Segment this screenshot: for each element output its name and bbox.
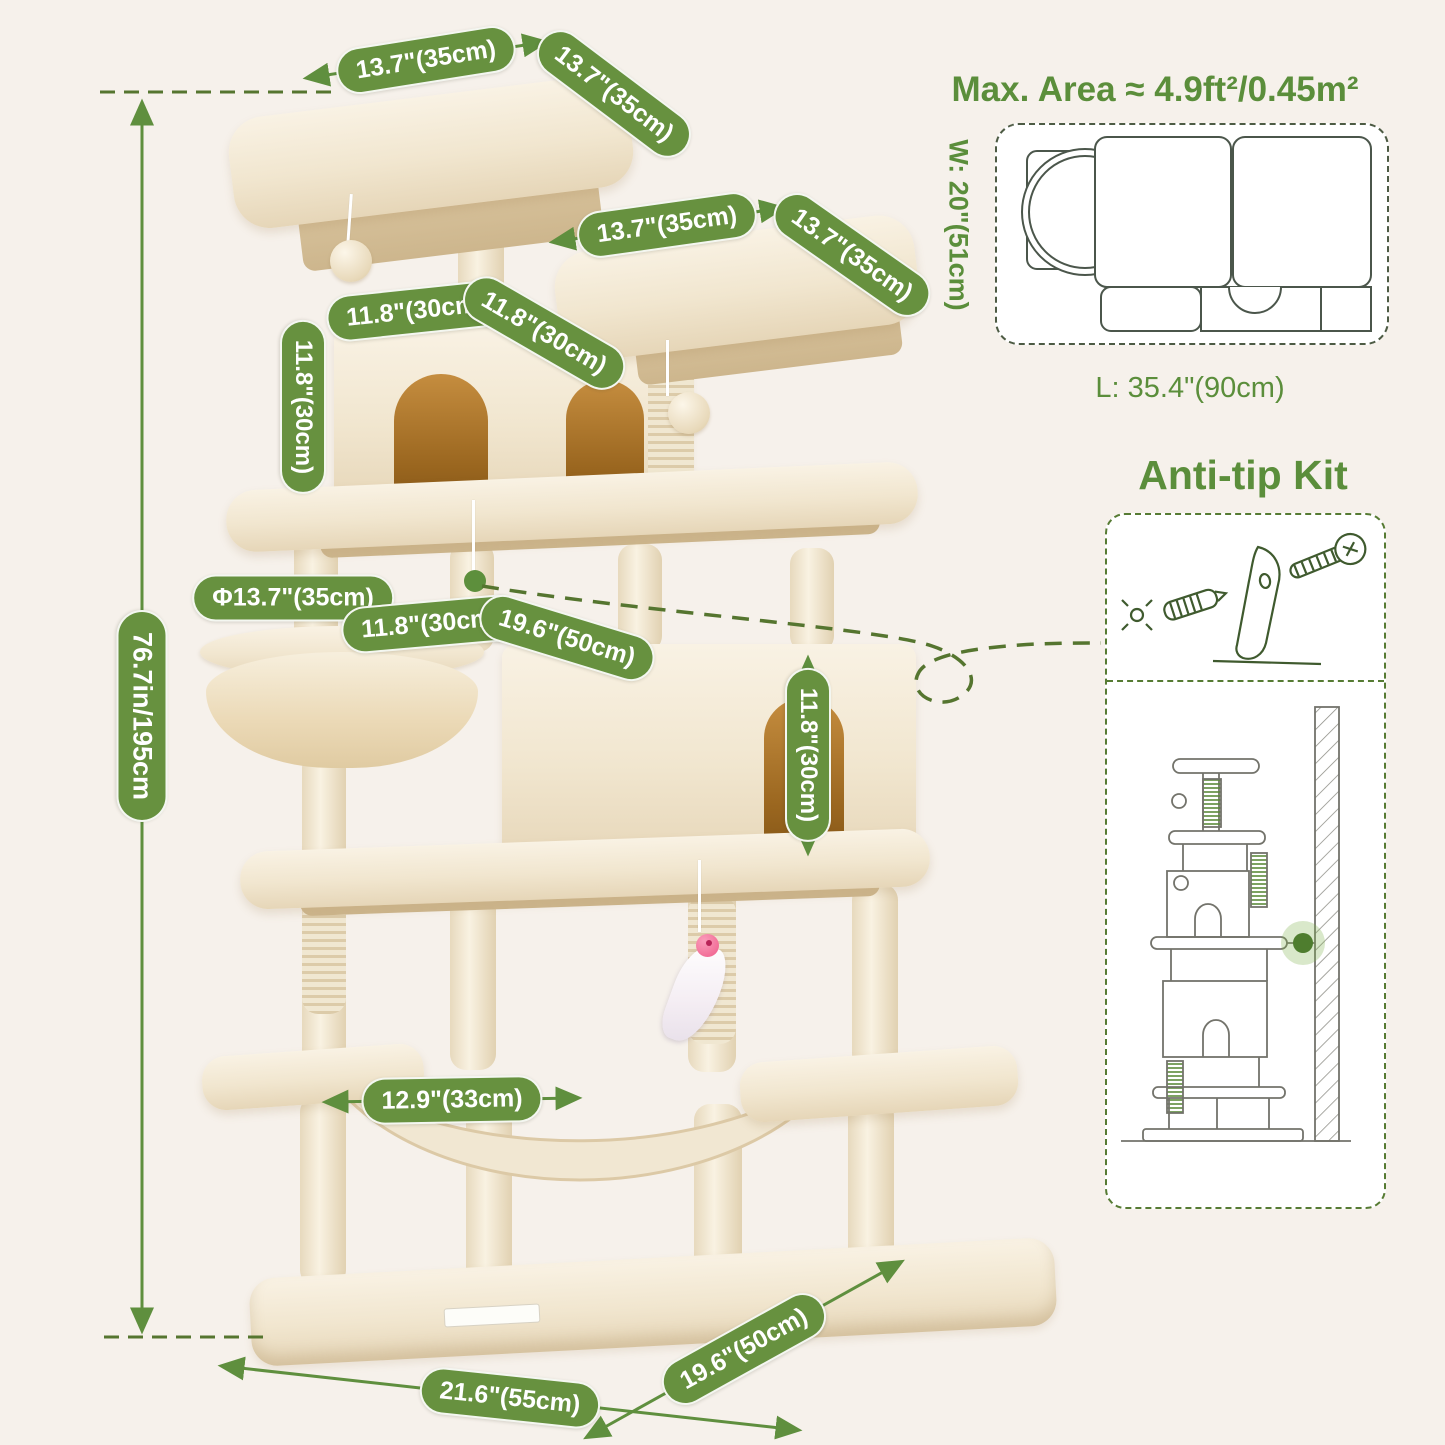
top-view-width-label: W: 20"(51cm) [943,139,974,310]
anti-tip-box [1105,513,1386,1209]
top-view-diagram [997,125,1383,339]
feather-eye [706,940,712,946]
top-view-length-label: L: 35.4"(90cm) [1040,372,1340,405]
pompom-toy [668,392,710,434]
anti-tip-hardware-diagram [1107,515,1384,680]
dim-hammock-width: 12.9"(33cm) [361,1075,543,1125]
support-post [450,884,496,1070]
pompom-toy [330,240,372,282]
toy-string [472,500,475,576]
base-board [248,1237,1058,1367]
support-post [852,884,898,1070]
support-post [790,548,834,652]
feather-toy [646,920,756,1050]
basket-bowl [206,652,478,768]
wall-mount-diagram [1107,683,1384,1203]
low-platform-right [738,1044,1020,1123]
dim-large-condo-height: 11.8"(30cm) [785,668,831,842]
anchor-point-dot [464,570,486,592]
product-dimension-infographic: 13.7"(35cm) 13.7"(35cm) 13.7"(35cm) 13.7… [0,0,1445,1445]
anti-tip-title: Anti-tip Kit [1043,452,1443,499]
toy-string [666,340,669,396]
dim-total-height: 76.7in/195cm [117,610,168,822]
dim-top-condo-height: 11.8"(30cm) [280,320,326,494]
top-view-box [995,123,1389,345]
max-area-title: Max. Area ≈ 4.9ft²/0.45m² [905,70,1405,110]
sisal-wrap [302,902,346,1014]
anti-tip-divider [1107,680,1384,682]
feather-body [656,939,733,1049]
